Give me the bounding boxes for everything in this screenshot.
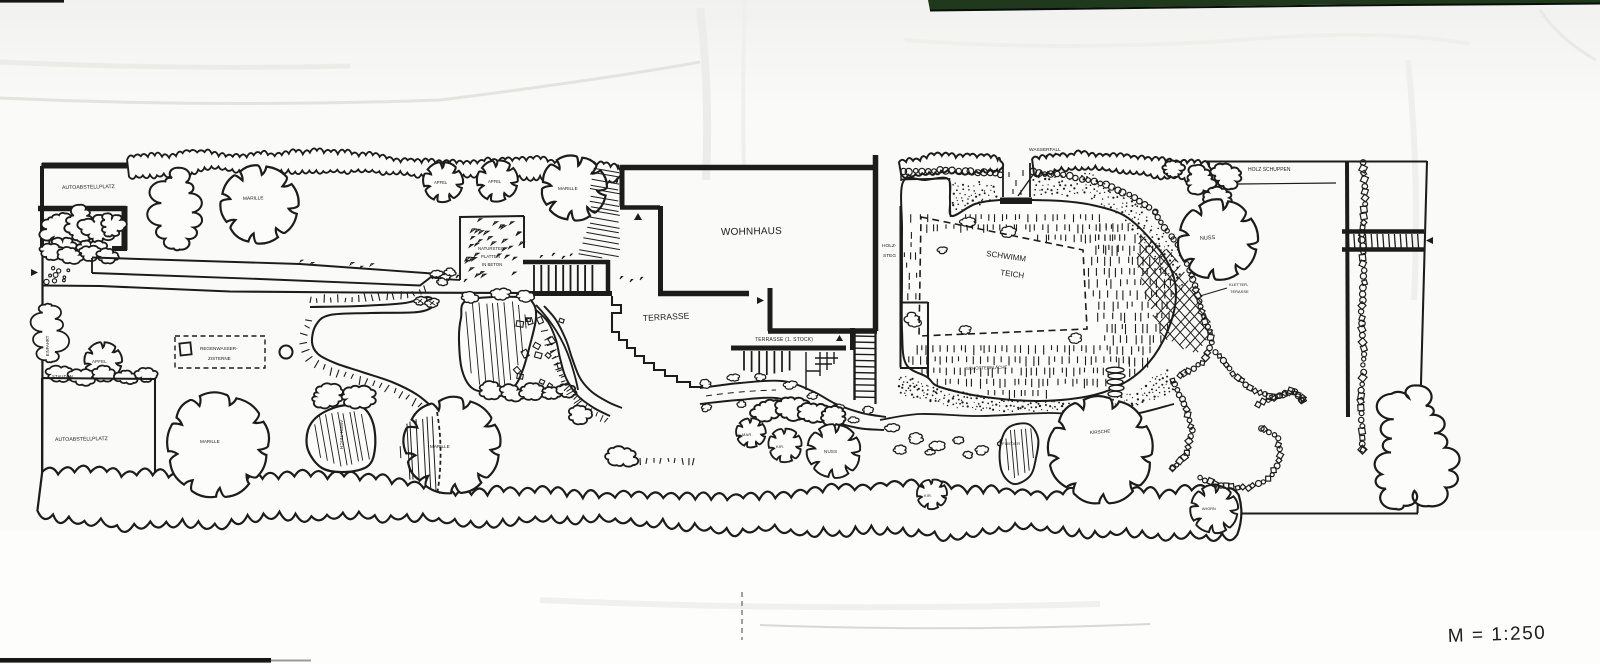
svg-text:WOHNHAUS: WOHNHAUS	[721, 226, 782, 238]
svg-text:FLIEDER: FLIEDER	[1002, 441, 1020, 446]
svg-text:IN BETON: IN BETON	[482, 262, 502, 267]
svg-text:HOLZ SCHUPPEN: HOLZ SCHUPPEN	[1248, 167, 1291, 173]
svg-text:HOLZ-: HOLZ-	[882, 243, 897, 249]
svg-text:PLATTEN: PLATTEN	[481, 254, 500, 259]
svg-text:APFEL: APFEL	[434, 180, 448, 185]
svg-text:KIR.: KIR.	[924, 494, 932, 498]
svg-text:AUTOABSTELLPLATZ: AUTOABSTELLPLATZ	[55, 436, 108, 443]
svg-text:TERRASSE (1. STOCK): TERRASSE (1. STOCK)	[755, 337, 813, 343]
svg-text:AMPH.TEICH: AMPH.TEICH	[339, 420, 344, 449]
svg-text:M = 1:250: M = 1:250	[1447, 623, 1546, 647]
svg-text:AHORN: AHORN	[1202, 507, 1216, 511]
svg-text:MARILLE: MARILLE	[558, 186, 578, 191]
svg-text:MARILLE: MARILLE	[200, 439, 220, 444]
svg-text:STEG: STEG	[883, 253, 896, 259]
svg-text:APFEL: APFEL	[488, 179, 502, 184]
svg-text:REGENWASSER-: REGENWASSER-	[200, 346, 238, 351]
svg-text:WASSERFALL: WASSERFALL	[1029, 147, 1061, 153]
svg-text:MAR.: MAR.	[742, 432, 753, 437]
svg-text:KLETTER-: KLETTER-	[1229, 282, 1249, 287]
svg-text:NUSS: NUSS	[1200, 235, 1216, 242]
svg-text:EINFAHRT: EINFAHRT	[45, 335, 50, 356]
svg-text:NUSS: NUSS	[824, 449, 837, 454]
svg-text:MARILLE: MARILLE	[243, 195, 264, 202]
svg-text:AUTOABSTELLPLATZ: AUTOABSTELLPLATZ	[62, 184, 115, 191]
svg-text:KIR.: KIR.	[776, 444, 785, 449]
svg-text:TERASSE: TERASSE	[1230, 289, 1249, 294]
svg-text:APFEL: APFEL	[92, 359, 107, 364]
svg-text:ZISTERNE: ZISTERNE	[208, 356, 231, 361]
svg-text:NATURSTEIN-: NATURSTEIN-	[478, 246, 507, 251]
